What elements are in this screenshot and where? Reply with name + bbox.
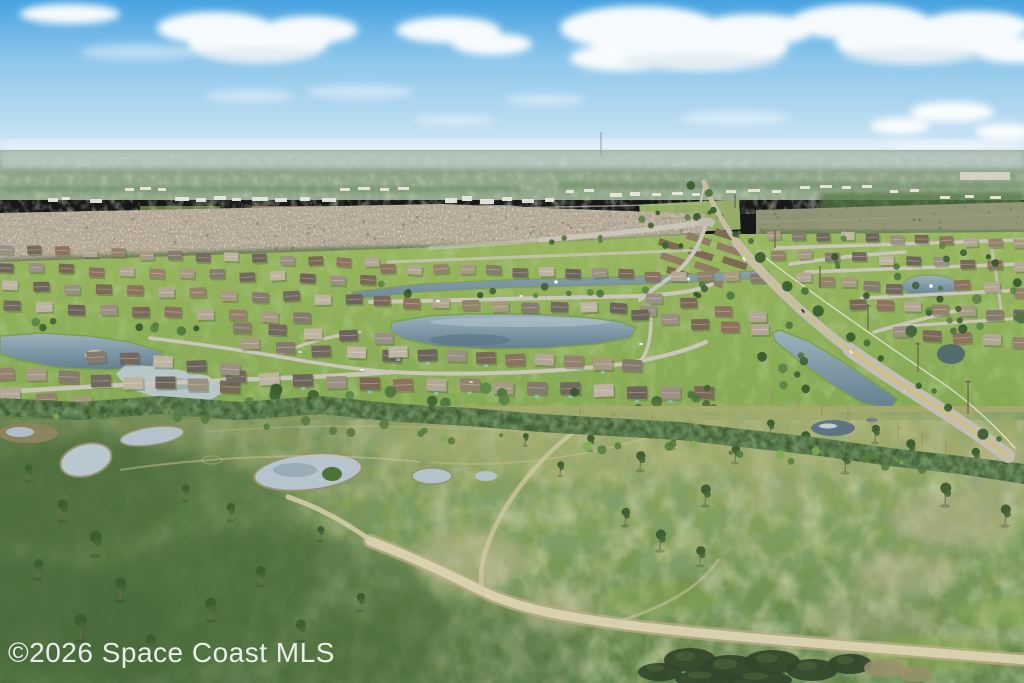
- tree: [499, 394, 510, 405]
- house: [346, 294, 364, 307]
- treeline-shrub: [690, 440, 697, 447]
- house: [563, 355, 585, 370]
- roadside-tree: [977, 429, 988, 440]
- tree: [269, 389, 280, 400]
- treeline-shrub: [861, 455, 869, 463]
- house: [751, 324, 771, 337]
- house: [326, 376, 348, 391]
- house: [890, 236, 905, 246]
- house: [100, 305, 119, 318]
- house: [988, 238, 1003, 249]
- house: [239, 272, 256, 284]
- house: [771, 251, 787, 262]
- pine-canopy: [119, 585, 126, 592]
- treeline-shrub: [448, 437, 456, 445]
- tree: [385, 386, 397, 398]
- house: [33, 282, 51, 294]
- roof-dot: [322, 230, 324, 232]
- house: [609, 302, 628, 315]
- roof-dot: [308, 227, 311, 230]
- pool: [426, 362, 430, 365]
- far-building: [214, 196, 226, 200]
- roadside-tree: [812, 305, 823, 316]
- tree: [778, 363, 788, 373]
- house: [964, 238, 980, 249]
- house: [915, 235, 930, 245]
- house: [224, 252, 240, 263]
- treeline-shrub: [379, 419, 389, 429]
- house: [300, 273, 318, 285]
- treeline-shrub: [53, 413, 59, 419]
- tree: [894, 273, 901, 280]
- house: [375, 333, 395, 346]
- house: [721, 322, 740, 335]
- tree: [863, 292, 870, 299]
- roof-dot: [628, 216, 630, 218]
- tree: [596, 290, 604, 298]
- tree: [957, 317, 963, 323]
- house: [91, 375, 113, 390]
- roof-dot: [869, 212, 871, 214]
- treeline-shrub: [597, 445, 606, 454]
- house: [592, 268, 609, 280]
- roof-dot: [777, 217, 779, 219]
- far-building: [125, 188, 134, 191]
- house: [189, 287, 207, 300]
- roof-dot: [313, 226, 316, 229]
- aerial-photo: ©2026 Space Coast MLS: [0, 0, 1024, 683]
- roof-dot: [532, 226, 534, 228]
- house: [697, 271, 714, 283]
- house: [68, 305, 87, 318]
- house: [403, 298, 422, 311]
- tree: [570, 388, 579, 397]
- far-building: [480, 199, 494, 204]
- roof-dot: [402, 223, 405, 226]
- house: [149, 268, 166, 280]
- treeline-shrub: [173, 413, 182, 422]
- house: [2, 280, 20, 293]
- pool: [396, 358, 400, 361]
- pool: [535, 395, 539, 398]
- roof-dot: [85, 226, 88, 229]
- roof-dot: [323, 240, 325, 242]
- pool: [434, 392, 438, 395]
- roof-dot: [275, 247, 278, 250]
- treeline-shrub: [499, 433, 503, 437]
- roof-dot: [566, 223, 569, 226]
- pine-canopy: [149, 641, 156, 648]
- far-building: [842, 186, 851, 189]
- house: [792, 232, 807, 243]
- tree: [477, 292, 483, 298]
- far-building: [672, 192, 683, 195]
- treeline-shrub: [263, 423, 269, 429]
- roof-dot: [669, 217, 671, 219]
- pine-shadow: [181, 500, 188, 503]
- house: [36, 301, 55, 314]
- tree: [938, 286, 943, 291]
- dark-pond: [937, 344, 965, 364]
- roof-ridge: [262, 317, 277, 318]
- far-building: [398, 187, 409, 190]
- house: [196, 253, 212, 264]
- house: [627, 386, 649, 402]
- roof-dot: [830, 214, 832, 216]
- house: [460, 265, 477, 276]
- house: [433, 264, 450, 276]
- house: [58, 370, 80, 385]
- tree: [926, 310, 932, 316]
- house: [86, 351, 108, 366]
- house: [565, 269, 582, 281]
- house: [954, 279, 972, 292]
- house: [646, 293, 664, 305]
- house: [293, 312, 312, 325]
- house: [280, 256, 296, 267]
- roof-dot: [577, 223, 579, 225]
- roof-dot: [256, 222, 259, 225]
- house: [505, 353, 527, 368]
- house: [866, 233, 881, 244]
- house: [986, 310, 1005, 323]
- tree: [405, 289, 411, 295]
- far-building: [322, 198, 336, 202]
- far-building: [252, 197, 268, 201]
- roof-dot: [912, 218, 916, 222]
- shrub-highlight: [675, 651, 696, 661]
- tree: [905, 325, 917, 337]
- roof-dot: [344, 215, 346, 217]
- house: [220, 363, 242, 378]
- house: [512, 268, 529, 279]
- pool: [635, 400, 639, 403]
- roof-ridge: [768, 235, 779, 236]
- pine-canopy: [699, 552, 705, 558]
- house: [304, 328, 324, 341]
- pine-canopy: [659, 536, 666, 543]
- house: [59, 264, 76, 276]
- house: [819, 277, 836, 289]
- tree: [960, 249, 967, 256]
- house: [906, 256, 923, 268]
- roof-ridge: [242, 343, 259, 344]
- pine-canopy: [259, 572, 265, 578]
- treeline-shrub: [728, 451, 733, 456]
- sand-mound: [898, 666, 932, 682]
- house: [179, 268, 196, 280]
- far-building: [610, 193, 622, 197]
- pine-canopy: [909, 445, 915, 451]
- tree: [976, 323, 984, 331]
- roadside-tree: [732, 231, 738, 237]
- roof-dot: [515, 227, 518, 230]
- sky-layer: [0, 0, 1024, 158]
- roof-dot: [918, 218, 921, 221]
- roof-ridge: [463, 305, 478, 306]
- house: [476, 352, 497, 368]
- tree: [841, 235, 847, 241]
- house: [491, 301, 510, 314]
- treeline-shrub: [441, 436, 448, 443]
- pine-canopy: [319, 531, 323, 535]
- tree: [427, 396, 437, 406]
- far-building: [584, 189, 594, 192]
- far-building: [175, 197, 189, 201]
- roof-dot: [610, 215, 613, 218]
- house: [252, 292, 271, 305]
- treeline-shrub: [62, 401, 68, 407]
- house: [96, 284, 114, 296]
- pine-canopy: [299, 626, 306, 633]
- roof-dot: [441, 238, 443, 240]
- tree: [692, 394, 701, 403]
- roof-dot: [938, 227, 941, 230]
- tree: [651, 396, 662, 407]
- house: [816, 233, 831, 244]
- roof-dot: [988, 212, 991, 215]
- house: [27, 245, 43, 256]
- roof-ridge: [37, 307, 52, 308]
- pine-shadow: [557, 475, 563, 477]
- far-building: [566, 190, 574, 193]
- far-building: [300, 197, 310, 201]
- house: [631, 309, 650, 322]
- roof-ridge: [434, 303, 449, 304]
- roof-dot: [186, 221, 188, 223]
- pine-canopy: [209, 605, 216, 612]
- roof-dot: [468, 215, 471, 218]
- roof-dot: [532, 230, 535, 233]
- roof-dot: [238, 218, 240, 220]
- house: [261, 311, 280, 324]
- house: [127, 285, 145, 297]
- far-building: [800, 186, 810, 189]
- tree: [642, 286, 649, 293]
- tree: [704, 385, 711, 392]
- car: [469, 381, 473, 383]
- house: [0, 263, 15, 275]
- roof-dot: [539, 233, 542, 236]
- pine-canopy: [79, 622, 87, 630]
- treeline-shrub: [775, 450, 784, 459]
- house: [923, 330, 943, 344]
- fountain: [929, 284, 933, 288]
- pool: [669, 400, 673, 403]
- treeline-shrub: [899, 460, 903, 464]
- shrub-highlight: [797, 662, 818, 671]
- house: [0, 367, 16, 382]
- far-building: [380, 188, 389, 191]
- pine-canopy: [37, 565, 43, 571]
- house: [64, 285, 82, 297]
- roof-dot: [845, 207, 848, 210]
- scrub-pond: [475, 471, 497, 481]
- far-building: [232, 198, 241, 201]
- roof-ridge: [197, 257, 209, 258]
- house: [139, 251, 155, 262]
- far-building: [652, 193, 661, 196]
- roof-dot: [416, 216, 419, 219]
- tree: [177, 326, 186, 335]
- pond-island-tree: [322, 467, 342, 481]
- house: [724, 271, 741, 283]
- far-building: [726, 190, 736, 193]
- treeline-shrub: [736, 450, 744, 458]
- tree: [779, 381, 787, 389]
- roadside-tree: [748, 238, 754, 244]
- house: [953, 332, 974, 346]
- house: [240, 338, 261, 352]
- house: [339, 330, 359, 344]
- roof-dot: [492, 239, 494, 241]
- shrub-highlight: [713, 659, 737, 669]
- lake-shadow: [430, 334, 510, 346]
- house: [671, 271, 688, 283]
- roof-dot: [113, 238, 115, 240]
- house: [580, 302, 599, 315]
- car: [519, 295, 522, 297]
- roof-dot: [307, 232, 310, 235]
- house: [268, 324, 288, 338]
- tree: [1013, 278, 1022, 287]
- treeline-shrub: [201, 415, 209, 423]
- pine-canopy: [184, 489, 189, 494]
- house: [283, 291, 301, 304]
- roadside-tree: [801, 287, 809, 295]
- house: [931, 304, 950, 316]
- roof-dot: [625, 222, 627, 224]
- house: [462, 300, 481, 313]
- tree: [638, 215, 645, 222]
- house: [270, 271, 287, 283]
- roof-dot: [679, 229, 682, 232]
- pool: [484, 365, 488, 368]
- house: [982, 334, 1002, 348]
- far-building: [462, 196, 472, 201]
- house: [715, 306, 734, 318]
- tree: [947, 317, 953, 323]
- tree: [655, 211, 660, 216]
- far-building: [862, 185, 872, 188]
- roof-dot: [1017, 216, 1019, 218]
- tree: [950, 327, 957, 334]
- far-building: [90, 199, 102, 203]
- house: [360, 275, 378, 287]
- tree: [541, 283, 549, 291]
- house: [618, 269, 635, 281]
- pine-canopy: [94, 538, 102, 546]
- house: [360, 377, 382, 393]
- house: [749, 312, 768, 325]
- pine-canopy: [639, 457, 645, 463]
- house: [168, 251, 184, 262]
- pine-shadow: [522, 445, 528, 447]
- tree: [801, 385, 810, 394]
- pine-canopy: [524, 437, 528, 441]
- pine-canopy: [359, 598, 365, 604]
- house: [380, 264, 397, 275]
- house: [1013, 239, 1024, 250]
- house: [330, 275, 348, 287]
- tree: [785, 322, 792, 329]
- roadside-tree: [931, 388, 937, 394]
- treeline-shrub: [881, 462, 890, 471]
- far-building: [445, 198, 457, 203]
- far-building: [965, 195, 974, 198]
- tree: [150, 324, 159, 333]
- far-building: [502, 197, 512, 201]
- treeline-shrub: [868, 451, 876, 459]
- treeline-shrub: [89, 407, 99, 417]
- pine-shadow: [317, 540, 323, 542]
- tree: [893, 263, 900, 270]
- house: [233, 322, 253, 335]
- roof-dot: [529, 232, 532, 235]
- roof-dot: [939, 221, 942, 224]
- tree: [50, 318, 57, 325]
- far-building: [940, 196, 950, 199]
- shrub-highlight: [688, 671, 712, 678]
- roof-dot: [366, 233, 369, 236]
- house: [593, 384, 615, 399]
- tree: [794, 371, 800, 377]
- roadside-tree: [710, 207, 717, 214]
- tree: [662, 242, 669, 249]
- tree: [726, 291, 734, 299]
- lake-reflection: [430, 317, 610, 327]
- house: [119, 267, 136, 279]
- tree: [489, 288, 496, 295]
- far-building: [630, 192, 640, 196]
- roadside-tree: [755, 252, 766, 263]
- tree: [549, 239, 555, 245]
- roof-dot: [132, 218, 135, 221]
- roof-dot: [934, 213, 936, 215]
- pine-canopy: [27, 469, 32, 474]
- roadside-tree: [878, 355, 884, 361]
- shrub-highlight: [836, 656, 854, 664]
- house: [221, 291, 239, 303]
- house: [680, 298, 698, 310]
- roof-dot: [773, 212, 776, 215]
- house: [311, 345, 332, 359]
- house: [539, 267, 556, 278]
- house: [534, 353, 556, 368]
- house: [551, 302, 570, 315]
- roof-ridge: [851, 304, 866, 305]
- house: [158, 288, 176, 300]
- treeline-shrub: [329, 427, 337, 435]
- roof-dot: [562, 221, 565, 224]
- far-building: [158, 188, 166, 191]
- pine-canopy: [61, 506, 68, 513]
- house: [308, 256, 325, 268]
- house: [155, 376, 177, 390]
- far-building: [748, 189, 760, 192]
- roof-dot: [205, 234, 208, 237]
- house: [521, 303, 539, 315]
- roof-ridge: [198, 314, 213, 315]
- tree: [936, 296, 943, 303]
- tree: [648, 223, 654, 229]
- roof-dot: [237, 246, 239, 248]
- shrub-highlight: [646, 664, 664, 671]
- tree: [1010, 287, 1017, 294]
- house: [186, 360, 208, 375]
- house: [406, 265, 423, 277]
- roof-dot: [362, 221, 365, 224]
